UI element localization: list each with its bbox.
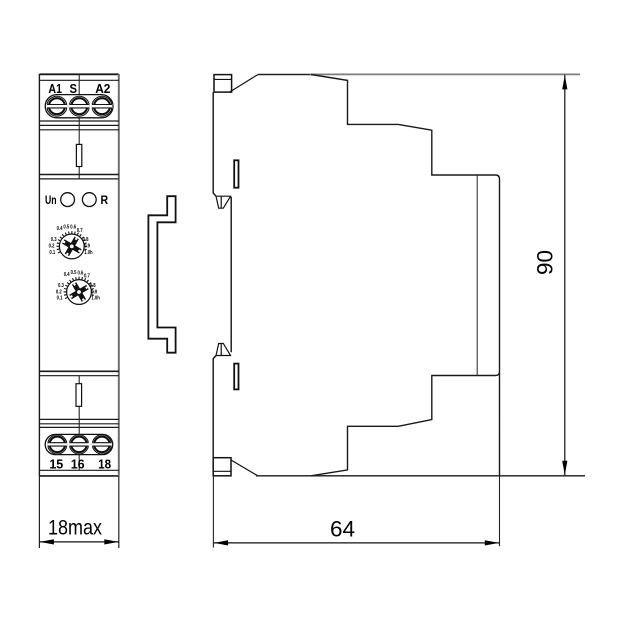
svg-text:0.5: 0.5 (71, 270, 77, 277)
svg-text:0.5: 0.5 (63, 224, 69, 231)
svg-text:18max: 18max (48, 516, 102, 540)
svg-text:1.0h: 1.0h (84, 250, 92, 257)
svg-text:0.8: 0.8 (83, 237, 89, 244)
svg-text:0.2: 0.2 (56, 289, 62, 296)
svg-text:1.0h: 1.0h (91, 295, 99, 302)
svg-text:0.1: 0.1 (49, 250, 55, 257)
svg-text:0.6: 0.6 (77, 270, 83, 277)
svg-text:0.1: 0.1 (57, 295, 63, 302)
svg-text:64: 64 (330, 516, 355, 541)
svg-text:0.4: 0.4 (57, 226, 63, 233)
svg-text:0.7: 0.7 (77, 227, 83, 234)
svg-text:0.9: 0.9 (91, 289, 97, 296)
svg-text:0.3: 0.3 (58, 282, 64, 289)
svg-text:90: 90 (533, 250, 558, 275)
svg-text:15: 15 (49, 457, 63, 471)
svg-text:A2: A2 (95, 82, 110, 96)
svg-text:0.8: 0.8 (90, 282, 96, 289)
svg-text:0.6: 0.6 (70, 224, 76, 231)
svg-text:Un: Un (45, 193, 57, 207)
svg-text:18: 18 (98, 457, 111, 471)
svg-text:0.7: 0.7 (84, 273, 90, 280)
svg-text:R: R (100, 194, 108, 207)
svg-text:0.3: 0.3 (51, 237, 57, 244)
svg-text:0.2: 0.2 (49, 243, 55, 250)
svg-text:16: 16 (71, 457, 85, 471)
svg-text:0.9: 0.9 (84, 243, 90, 250)
svg-text:0.4: 0.4 (64, 271, 70, 278)
svg-text:S: S (70, 81, 78, 96)
